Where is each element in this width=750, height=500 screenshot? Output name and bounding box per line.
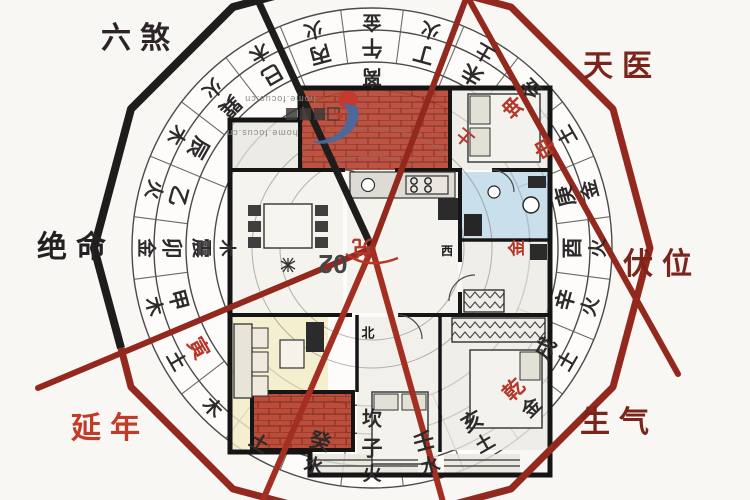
trigram-ring-char: 坎 bbox=[362, 406, 383, 430]
corner-label-jueming: 绝命 bbox=[37, 230, 115, 264]
corner-label-shengqi: 生气 bbox=[580, 406, 658, 439]
trigram-ring-char: 离 bbox=[362, 66, 382, 90]
coffee-table-icon bbox=[280, 340, 304, 368]
element-ring-char: 火 bbox=[587, 238, 609, 258]
west-label: 西 bbox=[441, 244, 453, 258]
mountain-ring-char: 卯 bbox=[159, 238, 182, 259]
floor-plan bbox=[230, 88, 550, 475]
fengshui-compass-floorplan: 丙午丁未坤申庚酉辛戌乾亥壬子癸寅甲卯乙辰巽巳火金火土金土金火火土金土水火水土木土… bbox=[0, 0, 750, 500]
watermark-text-1: home.focus.cn bbox=[244, 94, 316, 104]
sink-icon bbox=[362, 179, 375, 192]
washer-icon bbox=[464, 290, 504, 312]
trigram-ring-char: 震 bbox=[190, 238, 213, 259]
watermark-text-2: home.focus.cn bbox=[226, 128, 298, 138]
basin-icon bbox=[488, 186, 500, 198]
fengshui-floorplan-image: 丙午丁未坤申庚酉辛戌乾亥壬子癸寅甲卯乙辰巽巳火金火土金土金火火土金土水火水土木土… bbox=[0, 0, 750, 500]
element-ring-char: 金 bbox=[362, 11, 383, 34]
shower-icon bbox=[464, 214, 482, 236]
center-trigram-label: 兑 bbox=[352, 235, 373, 259]
corner-label-yannian: 延年 bbox=[70, 412, 149, 445]
corner-label-fuwei: 伏位 bbox=[623, 247, 701, 281]
mountain-ring-char: 午 bbox=[362, 35, 383, 59]
fridge-icon bbox=[438, 198, 458, 220]
mountain-ring-char: 酉 bbox=[562, 238, 585, 259]
mountain-ring-char: 子 bbox=[362, 438, 383, 461]
unit-number: 02 bbox=[319, 249, 348, 279]
north-label: 北 bbox=[361, 325, 374, 340]
inner-ring-char: 金 bbox=[506, 239, 526, 258]
corner-label-tianyi: 天医 bbox=[583, 50, 661, 83]
element-ring-char: 金 bbox=[135, 237, 158, 258]
tv-cabinet-icon bbox=[306, 322, 324, 352]
inner-ring-char: 木 bbox=[218, 239, 238, 258]
wardrobe-icon bbox=[452, 318, 545, 342]
element-ring-char: 火 bbox=[362, 463, 382, 485]
corner-label-liusha: 六煞 bbox=[101, 22, 179, 55]
toilet-icon bbox=[523, 197, 539, 213]
